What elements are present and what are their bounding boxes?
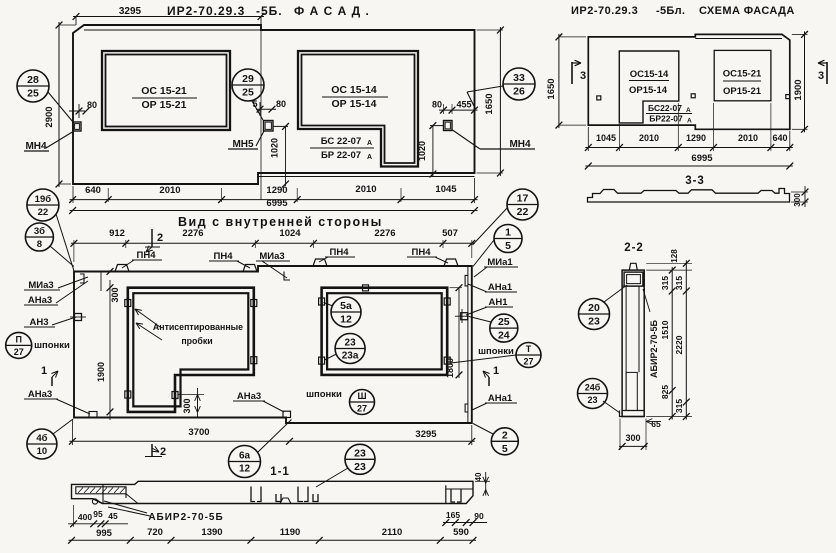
svg-text:3295: 3295 <box>415 429 437 440</box>
svg-text:20: 20 <box>588 302 600 314</box>
svg-text:2110: 2110 <box>382 527 403 538</box>
svg-text:1024: 1024 <box>279 228 301 239</box>
svg-text:2220: 2220 <box>674 335 684 354</box>
svg-text:2-2: 2-2 <box>624 242 644 254</box>
svg-text:2010: 2010 <box>639 133 659 143</box>
svg-text:Ф А С А Д .: Ф А С А Д . <box>294 4 370 18</box>
svg-text:12: 12 <box>340 314 352 326</box>
svg-text:АНа1: АНа1 <box>488 393 513 404</box>
svg-text:24б: 24б <box>585 383 601 393</box>
svg-text:1: 1 <box>493 365 499 377</box>
svg-text:1020: 1020 <box>417 141 427 161</box>
svg-text:640: 640 <box>772 133 787 143</box>
svg-text:5а: 5а <box>340 300 352 312</box>
svg-text:1900: 1900 <box>96 362 106 382</box>
svg-text:ПН4: ПН4 <box>137 250 157 261</box>
svg-text:3-3: 3-3 <box>685 175 705 187</box>
svg-text:АНа3: АНа3 <box>28 295 52 306</box>
svg-text:ОС 15-14: ОС 15-14 <box>331 84 377 96</box>
svg-text:29: 29 <box>242 73 254 85</box>
svg-text:1290: 1290 <box>266 185 287 196</box>
svg-text:3: 3 <box>818 70 824 82</box>
svg-text:27: 27 <box>523 356 533 366</box>
svg-text:2900: 2900 <box>44 106 55 127</box>
svg-text:26: 26 <box>513 86 525 98</box>
svg-text:507: 507 <box>442 228 458 239</box>
svg-text:шпонки: шпонки <box>478 346 514 357</box>
svg-text:315: 315 <box>660 276 670 290</box>
svg-text:П: П <box>15 334 21 344</box>
svg-text:27: 27 <box>357 403 367 413</box>
svg-text:3б: 3б <box>34 226 45 237</box>
svg-text:2010: 2010 <box>738 133 758 143</box>
svg-text:23: 23 <box>345 338 357 349</box>
svg-text:шпонки: шпонки <box>34 340 70 351</box>
svg-text:6995: 6995 <box>691 153 713 164</box>
svg-text:45: 45 <box>108 511 118 521</box>
svg-text:300: 300 <box>110 287 120 302</box>
svg-text:Ш: Ш <box>357 391 366 401</box>
svg-text:2276: 2276 <box>374 228 395 239</box>
svg-text:АНа3: АНа3 <box>28 389 52 400</box>
svg-text:Т: Т <box>526 344 532 354</box>
svg-text:6995: 6995 <box>266 198 288 209</box>
svg-text:25: 25 <box>498 316 510 328</box>
svg-text:1650: 1650 <box>484 93 495 114</box>
svg-text:пробки: пробки <box>181 336 212 346</box>
svg-text:-5Б.: -5Б. <box>256 4 283 18</box>
svg-text:2: 2 <box>157 232 163 244</box>
svg-text:1900: 1900 <box>793 79 804 100</box>
svg-text:10: 10 <box>37 446 48 457</box>
svg-text:12: 12 <box>239 464 251 475</box>
svg-text:22: 22 <box>517 206 529 218</box>
svg-text:912: 912 <box>109 228 125 239</box>
svg-text:23: 23 <box>354 461 366 473</box>
svg-text:ПН4: ПН4 <box>412 247 432 258</box>
svg-text:МИа3: МИа3 <box>259 251 284 262</box>
svg-text:1510: 1510 <box>660 320 670 339</box>
svg-text:23: 23 <box>587 395 597 405</box>
svg-text:3295: 3295 <box>119 6 142 17</box>
svg-text:23: 23 <box>588 316 600 328</box>
svg-text:17: 17 <box>517 193 529 205</box>
svg-text:-5Бл.: -5Бл. <box>656 5 685 17</box>
svg-text:АБИР2-70-5Б: АБИР2-70-5Б <box>148 512 223 523</box>
svg-text:300: 300 <box>182 398 192 413</box>
svg-text:Вид с внутренней стороны: Вид с внутренней стороны <box>178 215 383 229</box>
svg-text:65: 65 <box>651 419 661 429</box>
svg-text:1650: 1650 <box>546 78 557 99</box>
svg-text:315: 315 <box>674 399 684 413</box>
svg-text:4б: 4б <box>36 433 47 444</box>
svg-text:25: 25 <box>27 88 39 100</box>
svg-text:590: 590 <box>453 527 469 538</box>
svg-text:1190: 1190 <box>280 527 301 538</box>
svg-text:33: 33 <box>513 72 525 84</box>
svg-text:1390: 1390 <box>201 527 222 538</box>
svg-text:27: 27 <box>14 347 24 357</box>
svg-text:А: А <box>367 140 372 147</box>
svg-text:1045: 1045 <box>596 133 616 143</box>
svg-text:400: 400 <box>78 512 92 522</box>
svg-text:ОР15-14: ОР15-14 <box>629 85 668 96</box>
svg-text:80: 80 <box>432 100 442 110</box>
svg-text:825: 825 <box>660 385 670 399</box>
svg-text:СХЕМА ФАСАДА: СХЕМА ФАСАДА <box>699 5 795 17</box>
svg-text:А: А <box>687 118 692 125</box>
svg-text:19б: 19б <box>35 194 52 205</box>
svg-text:22: 22 <box>38 207 49 218</box>
svg-text:25: 25 <box>242 87 254 99</box>
svg-text:1290: 1290 <box>686 133 706 143</box>
svg-text:ОР15-21: ОР15-21 <box>723 86 762 97</box>
svg-text:95: 95 <box>93 509 103 519</box>
svg-text:128: 128 <box>670 249 679 263</box>
svg-text:90: 90 <box>474 511 484 521</box>
svg-text:А: А <box>367 154 372 161</box>
svg-text:ОР 15-21: ОР 15-21 <box>142 99 187 111</box>
svg-text:40: 40 <box>474 472 483 481</box>
svg-text:МН5: МН5 <box>232 139 254 150</box>
svg-text:Антисептированные: Антисептированные <box>153 322 243 332</box>
svg-text:шпонки: шпонки <box>306 389 342 400</box>
svg-text:720: 720 <box>147 527 163 538</box>
svg-text:3: 3 <box>580 70 586 82</box>
svg-text:ОР 15-14: ОР 15-14 <box>332 98 377 110</box>
svg-text:2010: 2010 <box>355 184 376 195</box>
svg-text:23: 23 <box>354 447 366 459</box>
svg-text:455: 455 <box>456 100 471 110</box>
svg-text:1800: 1800 <box>445 358 455 378</box>
svg-text:300: 300 <box>625 433 640 443</box>
svg-text:2010: 2010 <box>159 185 180 196</box>
svg-text:ИР2-70.29.3: ИР2-70.29.3 <box>571 5 638 17</box>
svg-text:23а: 23а <box>342 351 359 362</box>
svg-text:АНа3: АНа3 <box>237 391 261 402</box>
svg-text:БС 22-07: БС 22-07 <box>321 136 362 147</box>
svg-text:АБИР2-70-5Б: АБИР2-70-5Б <box>649 320 659 378</box>
svg-text:3700: 3700 <box>188 427 209 438</box>
svg-text:АН3: АН3 <box>29 317 48 328</box>
svg-text:ОС15-14: ОС15-14 <box>630 69 669 80</box>
svg-text:1020: 1020 <box>270 138 280 158</box>
svg-text:БР 22-07: БР 22-07 <box>321 150 361 161</box>
svg-text:80: 80 <box>87 100 97 110</box>
svg-text:28: 28 <box>27 74 39 86</box>
svg-text:МИа1: МИа1 <box>487 257 513 268</box>
svg-text:1-1: 1-1 <box>270 466 290 478</box>
svg-text:24: 24 <box>498 330 510 342</box>
svg-text:А: А <box>686 107 691 114</box>
svg-text:80: 80 <box>276 99 286 109</box>
svg-text:МИа3: МИа3 <box>28 280 53 291</box>
svg-text:ОС15-21: ОС15-21 <box>723 69 762 80</box>
svg-text:ИР2-70.29.3: ИР2-70.29.3 <box>167 4 245 18</box>
svg-text:5: 5 <box>502 443 508 455</box>
svg-text:300: 300 <box>793 193 802 207</box>
svg-text:5: 5 <box>505 240 511 252</box>
svg-text:315: 315 <box>674 276 684 290</box>
svg-text:1: 1 <box>505 227 511 239</box>
svg-text:ПН4: ПН4 <box>330 247 350 258</box>
svg-text:165: 165 <box>446 510 460 520</box>
svg-text:6а: 6а <box>239 451 251 462</box>
svg-text:АНа1: АНа1 <box>488 282 513 293</box>
svg-text:2: 2 <box>502 429 508 441</box>
svg-text:640: 640 <box>85 185 101 196</box>
svg-text:995: 995 <box>96 528 113 539</box>
svg-text:2276: 2276 <box>182 228 203 239</box>
svg-text:1: 1 <box>41 365 47 377</box>
svg-text:8: 8 <box>37 239 42 250</box>
svg-text:2: 2 <box>160 446 166 458</box>
svg-text:МН4: МН4 <box>25 141 47 152</box>
svg-text:ОС 15-21: ОС 15-21 <box>141 85 187 97</box>
svg-text:БС22-07: БС22-07 <box>648 103 682 113</box>
svg-text:1045: 1045 <box>435 184 457 195</box>
svg-text:МН4: МН4 <box>509 139 531 150</box>
svg-text:ПН4: ПН4 <box>214 251 234 262</box>
svg-text:АН1: АН1 <box>488 297 508 308</box>
